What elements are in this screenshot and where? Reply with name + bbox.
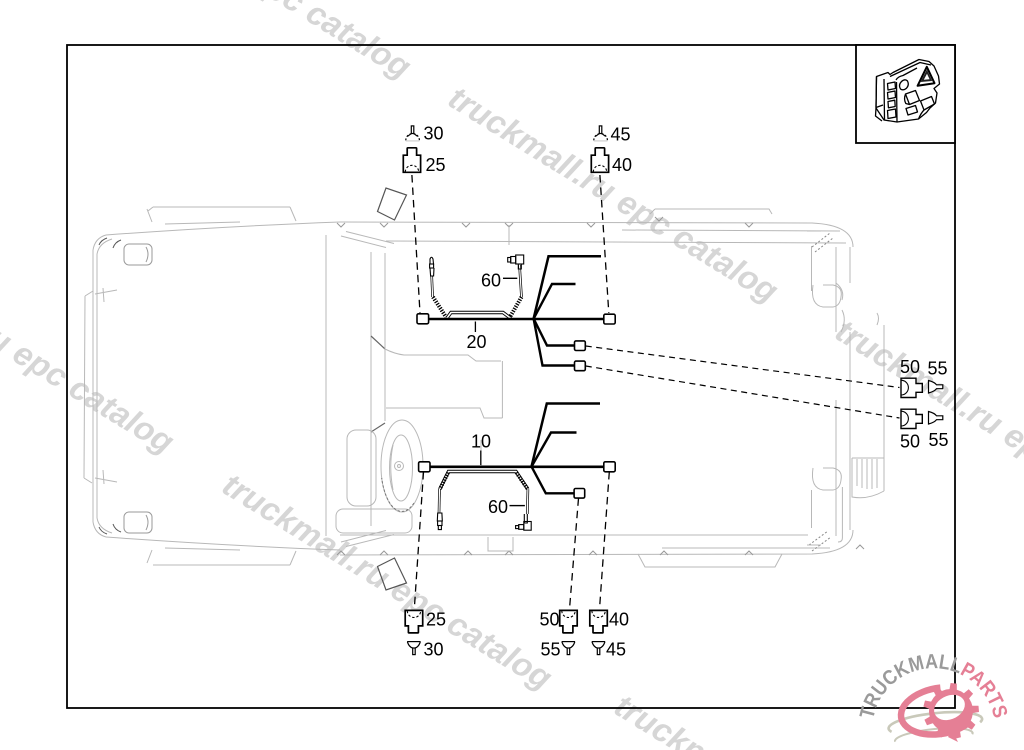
svg-text:60: 60 [488,497,508,517]
svg-text:40: 40 [609,610,629,630]
svg-text:55: 55 [541,640,561,660]
svg-text:50: 50 [900,432,920,452]
svg-text:55: 55 [928,359,948,379]
svg-text:55: 55 [929,430,949,450]
svg-text:45: 45 [606,640,626,660]
svg-text:30: 30 [424,640,444,660]
svg-text:20: 20 [467,332,487,352]
svg-text:30: 30 [424,124,444,144]
svg-text:25: 25 [426,155,446,175]
svg-text:45: 45 [611,125,631,145]
svg-text:50: 50 [900,357,920,377]
svg-text:50: 50 [540,610,560,630]
svg-text:60: 60 [481,271,501,291]
svg-text:40: 40 [612,155,632,175]
svg-text:25: 25 [426,610,446,630]
svg-text:10: 10 [471,432,491,452]
